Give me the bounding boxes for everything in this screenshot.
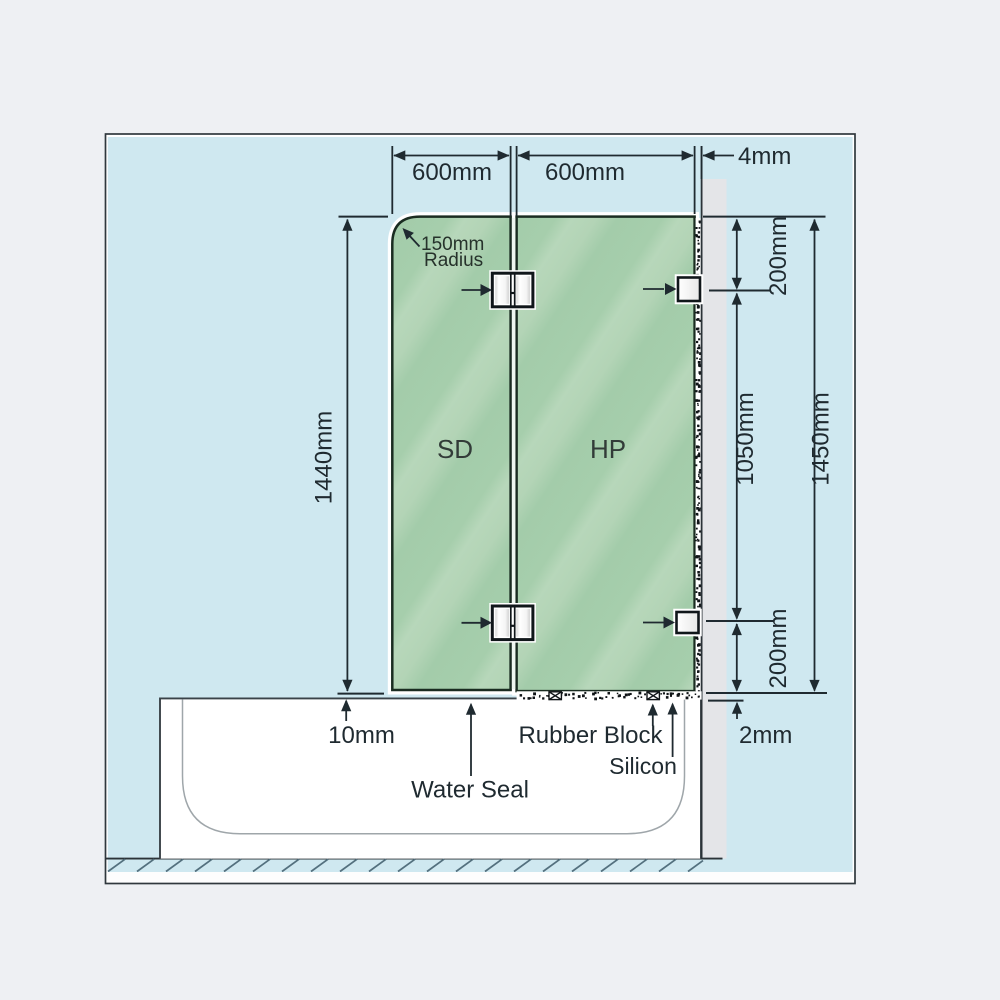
svg-text:SD: SD bbox=[437, 434, 473, 464]
svg-text:600mm: 600mm bbox=[545, 159, 625, 186]
svg-text:4mm: 4mm bbox=[738, 143, 791, 170]
svg-text:600mm: 600mm bbox=[412, 159, 492, 186]
svg-text:200mm: 200mm bbox=[765, 608, 792, 688]
svg-text:1450mm: 1450mm bbox=[808, 392, 835, 485]
svg-text:1440mm: 1440mm bbox=[311, 411, 338, 504]
svg-text:Silicon: Silicon bbox=[609, 753, 677, 779]
svg-text:Water Seal: Water Seal bbox=[411, 777, 529, 804]
svg-text:HP: HP bbox=[590, 434, 626, 464]
svg-text:Rubber Block: Rubber Block bbox=[518, 722, 663, 749]
svg-text:10mm: 10mm bbox=[328, 722, 395, 749]
svg-text:2mm: 2mm bbox=[739, 722, 792, 749]
svg-text:200mm: 200mm bbox=[765, 216, 792, 296]
svg-text:1050mm: 1050mm bbox=[732, 392, 759, 485]
svg-text:Radius: Radius bbox=[424, 250, 483, 271]
